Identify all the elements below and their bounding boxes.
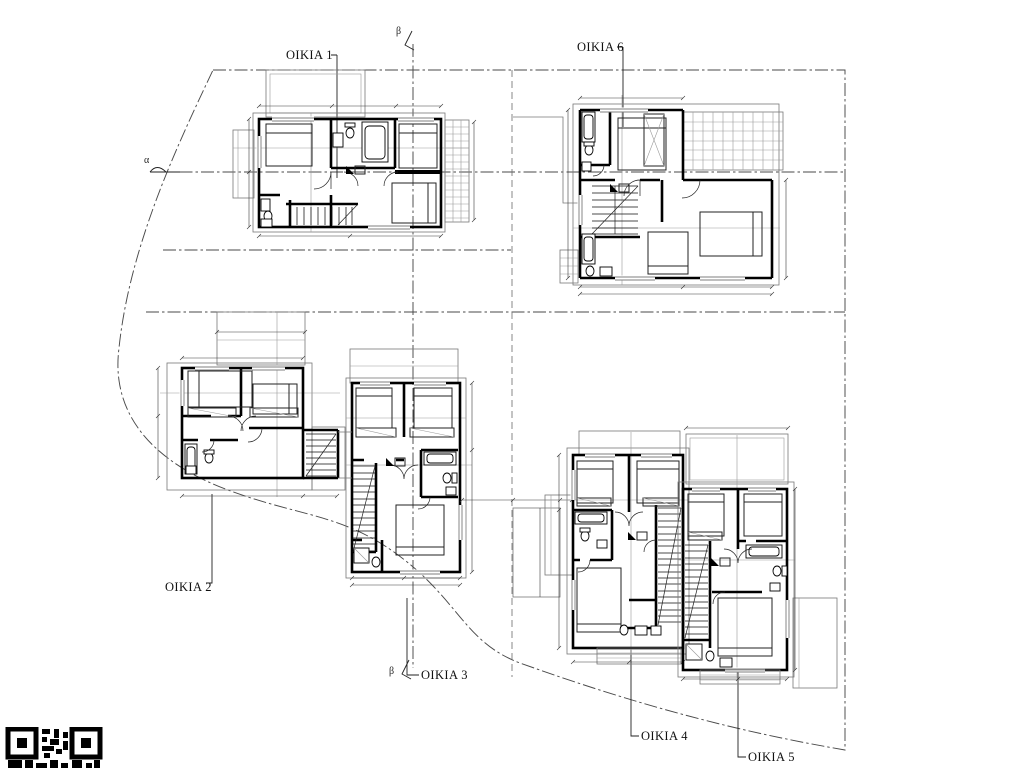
alpha-marker-icon	[150, 168, 180, 173]
house-plan-oikia-1	[233, 70, 476, 238]
house-label-oikia-6: OIKIA 6	[577, 40, 624, 55]
house-plan-oikia-5	[678, 426, 837, 688]
section-marker-beta-top: β	[396, 26, 401, 37]
house-label-oikia-4: OIKIA 4	[641, 729, 688, 744]
house-plan-oikia-4	[545, 431, 689, 664]
house-plan-oikia-3	[346, 349, 574, 597]
beta-bottom-marker-icon	[402, 660, 411, 679]
house-plan-oikia-2	[156, 312, 345, 498]
floor-plan-canvas: OIKIA 1 OIKIA 6 OIKIA 2 OIKIA 3 OIKIA 4 …	[0, 0, 1022, 768]
qr-code	[4, 727, 104, 768]
leader-oikia-5	[738, 672, 746, 757]
house-label-oikia-5: OIKIA 5	[748, 750, 795, 765]
house-label-oikia-2: OIKIA 2	[165, 580, 212, 595]
house-plan-oikia-6	[513, 95, 788, 296]
house-label-oikia-3: OIKIA 3	[421, 668, 468, 683]
house-label-oikia-1: OIKIA 1	[286, 48, 333, 63]
section-marker-alpha: α	[144, 155, 149, 166]
leader-oikia-4	[631, 650, 639, 736]
section-marker-beta-bottom: β	[389, 666, 394, 677]
site-plan-drawing	[0, 0, 1022, 768]
leader-oikia-2	[206, 494, 212, 583]
